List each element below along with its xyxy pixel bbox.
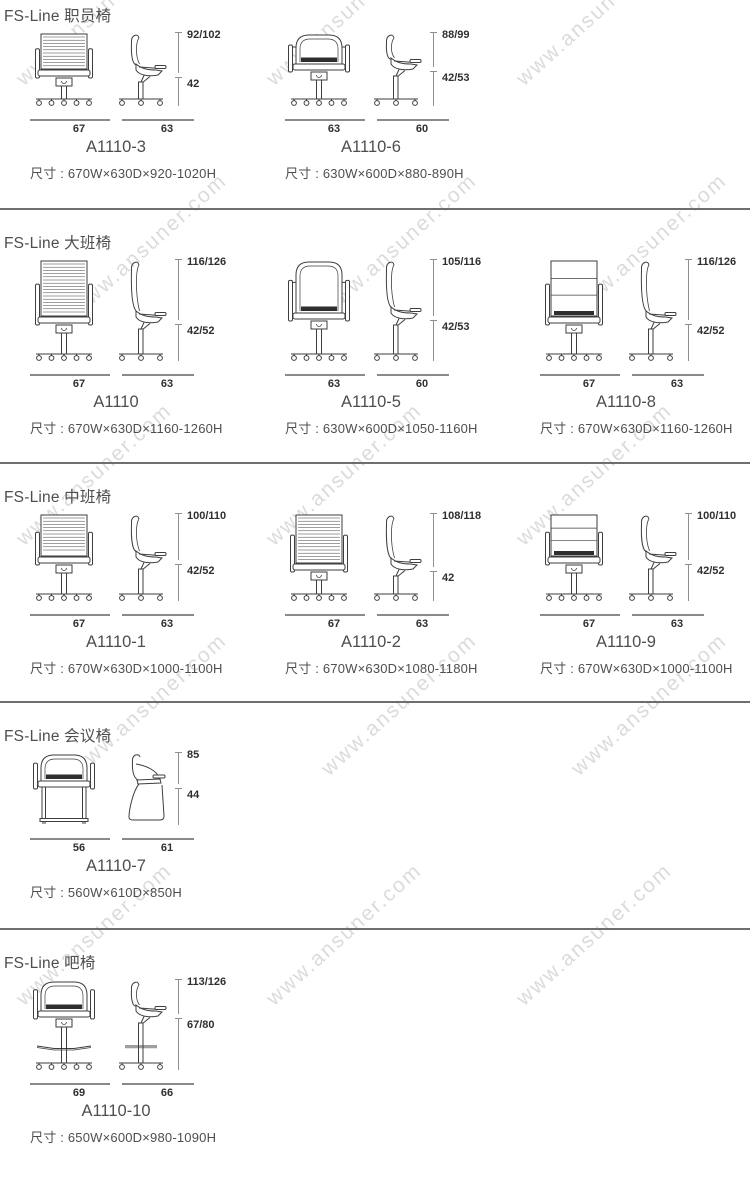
height-dimension-line [178, 324, 179, 361]
model-name: A1110 [30, 393, 202, 412]
width-dimension: 63 [285, 374, 365, 390]
models-row: 85445661A1110-7尺寸 : 560W×610D×850H [4, 752, 750, 901]
height-dimension-line [178, 513, 179, 560]
dimension-tick [685, 564, 692, 565]
model-name: A1110-2 [285, 633, 457, 652]
height-dimension-label: 92/102 [187, 30, 221, 41]
chair-front-view [285, 32, 353, 106]
width-dimensions: 6966 [30, 1083, 259, 1099]
chair-front-view [540, 259, 608, 361]
width-dimension: 60 [377, 374, 449, 390]
width-dimension-label: 67 [39, 376, 119, 390]
model-name: A1110-3 [30, 138, 202, 157]
models-row: 92/102426763A1110-3尺寸 : 670W×630D×920-10… [4, 32, 750, 182]
dimension-tick [175, 1018, 182, 1019]
height-dimension-line [433, 513, 434, 567]
model-size-label: 尺寸 : 670W×630D×1000-1100H [540, 658, 750, 677]
product-section: FS-Line 吧椅113/12667/806966A1110-10尺寸 : 6… [0, 930, 750, 1188]
product-section: FS-Line 职员椅92/102426763A1110-3尺寸 : 670W×… [0, 0, 750, 210]
width-dimension: 63 [122, 374, 194, 390]
height-dimension-label: 44 [187, 790, 199, 801]
height-dimension-label: 42/52 [697, 326, 725, 337]
catalog-page: www.ansuner.comwww.ansuner.comwww.ansune… [0, 0, 750, 1188]
dimension-tick [175, 77, 182, 78]
height-dimension-line [433, 320, 434, 361]
width-dimension-label: 61 [131, 840, 203, 854]
height-dimension: 100/11042/52 [688, 513, 744, 601]
width-dimension-label: 66 [131, 1085, 203, 1099]
width-dimension-label: 67 [294, 616, 374, 630]
model-name: A1110-5 [285, 393, 457, 412]
model-size-label: 尺寸 : 670W×630D×920-1020H [30, 163, 259, 182]
width-dimension: 67 [540, 374, 620, 390]
height-dimension: 8544 [178, 752, 234, 825]
dimension-tick [685, 324, 692, 325]
model-block: 100/11042/526763A1110-1尺寸 : 670W×630D×10… [4, 513, 259, 677]
model-block: 85445661A1110-7尺寸 : 560W×610D×850H [4, 752, 259, 901]
chair-side-view [112, 513, 170, 601]
chair-front-view [285, 513, 353, 601]
width-dimensions: 6763 [285, 614, 514, 630]
width-dimensions: 6763 [540, 374, 750, 390]
model-size-label: 尺寸 : 670W×630D×1160-1260H [540, 418, 750, 437]
dimension-tick [175, 259, 182, 260]
dimension-tick [430, 259, 437, 260]
drawing-row: 92/10242 [30, 32, 259, 106]
height-dimension-label: 42/52 [697, 566, 725, 577]
model-block: 113/12667/806966A1110-10尺寸 : 650W×600D×9… [4, 979, 259, 1146]
model-name: A1110-9 [540, 633, 712, 652]
width-dimension: 60 [377, 119, 449, 135]
product-section: FS-Line 中班椅100/11042/526763A1110-1尺寸 : 6… [0, 464, 750, 703]
width-dimension-label: 63 [131, 616, 203, 630]
drawing-row: 100/11042/52 [540, 513, 750, 601]
width-dimension: 63 [285, 119, 365, 135]
height-dimension-line [178, 564, 179, 601]
model-block: 116/12642/526763A1110-8尺寸 : 670W×630D×11… [514, 259, 750, 437]
width-dimension-label: 69 [39, 1085, 119, 1099]
dimension-tick [175, 788, 182, 789]
dimension-tick [175, 752, 182, 753]
height-dimension: 92/10242 [178, 32, 234, 106]
width-dimension: 63 [632, 614, 704, 630]
chair-side-view [367, 513, 425, 601]
chair-side-view [367, 259, 425, 361]
height-dimension-label: 100/110 [697, 511, 736, 522]
width-dimension-label: 67 [549, 616, 629, 630]
width-dimension-label: 63 [294, 376, 374, 390]
model-block: 100/11042/526763A1110-9尺寸 : 670W×630D×10… [514, 513, 750, 677]
chair-front-view [30, 513, 98, 601]
dimension-tick [685, 513, 692, 514]
model-size-label: 尺寸 : 630W×600D×880-890H [285, 163, 514, 182]
height-dimension-line [178, 979, 179, 1014]
section-title: FS-Line 大班椅 [4, 231, 750, 253]
drawing-row: 108/11842 [285, 513, 514, 601]
model-size-label: 尺寸 : 630W×600D×1050-1160H [285, 418, 514, 437]
product-section: FS-Line 会议椅85445661A1110-7尺寸 : 560W×610D… [0, 703, 750, 930]
dimension-tick [685, 259, 692, 260]
width-dimension-label: 63 [131, 121, 203, 135]
section-title: FS-Line 吧椅 [4, 951, 750, 973]
model-size-label: 尺寸 : 560W×610D×850H [30, 882, 259, 901]
width-dimensions: 6360 [285, 374, 514, 390]
model-size-label: 尺寸 : 670W×630D×1000-1100H [30, 658, 259, 677]
section-title: FS-Line 职员椅 [4, 4, 750, 26]
width-dimension-label: 63 [294, 121, 374, 135]
model-size-label: 尺寸 : 670W×630D×1080-1180H [285, 658, 514, 677]
models-row: 116/12642/526763A1110尺寸 : 670W×630D×1160… [4, 259, 750, 437]
dimension-tick [175, 32, 182, 33]
width-dimensions: 6763 [30, 374, 259, 390]
width-dimension: 69 [30, 1083, 110, 1099]
height-dimension-line [688, 324, 689, 361]
chair-front-view [30, 979, 98, 1070]
height-dimension-line [178, 788, 179, 825]
dimension-tick [175, 564, 182, 565]
height-dimension-line [178, 77, 179, 106]
height-dimension: 116/12642/52 [688, 259, 744, 361]
height-dimension-label: 42 [187, 79, 199, 90]
width-dimensions: 6763 [30, 614, 259, 630]
height-dimension-line [688, 564, 689, 601]
width-dimension-label: 67 [39, 616, 119, 630]
model-block: 92/102426763A1110-3尺寸 : 670W×630D×920-10… [4, 32, 259, 182]
width-dimension: 63 [122, 119, 194, 135]
width-dimension-label: 67 [549, 376, 629, 390]
width-dimension-label: 67 [39, 121, 119, 135]
model-block: 108/118426763A1110-2尺寸 : 670W×630D×1080-… [259, 513, 514, 677]
dimension-tick [175, 513, 182, 514]
width-dimension: 56 [30, 838, 110, 854]
height-dimension-line [433, 259, 434, 316]
width-dimension: 63 [377, 614, 449, 630]
width-dimensions: 6763 [540, 614, 750, 630]
width-dimension: 67 [30, 119, 110, 135]
width-dimension: 61 [122, 838, 194, 854]
chair-side-view [112, 752, 170, 825]
model-size-label: 尺寸 : 650W×600D×980-1090H [30, 1127, 259, 1146]
chair-front-view [30, 259, 98, 361]
height-dimension-label: 42/52 [187, 326, 215, 337]
chair-side-view [367, 32, 425, 106]
height-dimension-label: 42/52 [187, 566, 215, 577]
chair-side-view [112, 259, 170, 361]
dimension-tick [430, 320, 437, 321]
model-name: A1110-1 [30, 633, 202, 652]
dimension-tick [175, 979, 182, 980]
height-dimension-label: 116/126 [697, 257, 736, 268]
drawing-row: 100/11042/52 [30, 513, 259, 601]
width-dimension: 63 [632, 374, 704, 390]
width-dimension-label: 56 [39, 840, 119, 854]
drawing-row: 116/12642/52 [540, 259, 750, 361]
model-block: 88/9942/536360A1110-6尺寸 : 630W×600D×880-… [259, 32, 514, 182]
height-dimension: 116/12642/52 [178, 259, 234, 361]
drawing-row: 113/12667/80 [30, 979, 259, 1070]
height-dimension-label: 42/53 [442, 73, 470, 84]
height-dimension-line [178, 1018, 179, 1070]
width-dimension: 66 [122, 1083, 194, 1099]
width-dimension: 63 [122, 614, 194, 630]
width-dimension-label: 60 [386, 121, 458, 135]
height-dimension-line [433, 71, 434, 106]
height-dimension-line [688, 259, 689, 320]
width-dimension-label: 63 [131, 376, 203, 390]
height-dimension-label: 105/116 [442, 257, 481, 268]
drawing-row: 116/12642/52 [30, 259, 259, 361]
width-dimension-label: 63 [386, 616, 458, 630]
dimension-tick [430, 71, 437, 72]
width-dimension-label: 63 [641, 376, 713, 390]
drawing-row: 88/9942/53 [285, 32, 514, 106]
dimension-tick [175, 324, 182, 325]
height-dimension-line [178, 32, 179, 73]
height-dimension-label: 108/118 [442, 511, 481, 522]
height-dimension-label: 67/80 [187, 1020, 215, 1031]
height-dimension: 113/12667/80 [178, 979, 234, 1070]
sections-list: FS-Line 职员椅92/102426763A1110-3尺寸 : 670W×… [0, 0, 750, 1188]
drawing-row: 8544 [30, 752, 259, 825]
model-size-label: 尺寸 : 670W×630D×1160-1260H [30, 418, 259, 437]
height-dimension: 100/11042/52 [178, 513, 234, 601]
width-dimension: 67 [30, 374, 110, 390]
chair-front-view [540, 513, 608, 601]
model-block: 105/11642/536360A1110-5尺寸 : 630W×600D×10… [259, 259, 514, 437]
model-name: A1110-10 [30, 1102, 202, 1121]
height-dimension-label: 85 [187, 750, 199, 761]
height-dimension: 108/11842 [433, 513, 489, 601]
width-dimension: 67 [285, 614, 365, 630]
dimension-tick [430, 571, 437, 572]
model-name: A1110-7 [30, 857, 202, 876]
width-dimension: 67 [30, 614, 110, 630]
product-section: FS-Line 大班椅116/12642/526763A1110尺寸 : 670… [0, 210, 750, 464]
chair-front-view [30, 32, 98, 106]
models-row: 113/12667/806966A1110-10尺寸 : 650W×600D×9… [4, 979, 750, 1146]
height-dimension-label: 116/126 [187, 257, 226, 268]
height-dimension-label: 88/99 [442, 30, 470, 41]
height-dimension-label: 42 [442, 573, 454, 584]
height-dimension-label: 113/126 [187, 977, 226, 988]
chair-front-view [285, 259, 353, 361]
height-dimension-line [178, 752, 179, 784]
models-row: 100/11042/526763A1110-1尺寸 : 670W×630D×10… [4, 513, 750, 677]
height-dimension-line [178, 259, 179, 320]
width-dimensions: 6763 [30, 119, 259, 135]
width-dimension-label: 60 [386, 376, 458, 390]
chair-side-view [622, 513, 680, 601]
model-block: 116/12642/526763A1110尺寸 : 670W×630D×1160… [4, 259, 259, 437]
height-dimension-line [688, 513, 689, 560]
chair-side-view [112, 979, 170, 1070]
dimension-tick [430, 32, 437, 33]
width-dimension-label: 63 [641, 616, 713, 630]
height-dimension-line [433, 571, 434, 601]
drawing-row: 105/11642/53 [285, 259, 514, 361]
chair-side-view [622, 259, 680, 361]
height-dimension: 105/11642/53 [433, 259, 489, 361]
width-dimensions: 6360 [285, 119, 514, 135]
width-dimension: 67 [540, 614, 620, 630]
model-name: A1110-8 [540, 393, 712, 412]
section-title: FS-Line 会议椅 [4, 724, 750, 746]
section-title: FS-Line 中班椅 [4, 485, 750, 507]
height-dimension: 88/9942/53 [433, 32, 489, 106]
height-dimension-label: 100/110 [187, 511, 226, 522]
height-dimension-label: 42/53 [442, 322, 470, 333]
chair-front-view [30, 752, 98, 825]
chair-side-view [112, 32, 170, 106]
width-dimensions: 5661 [30, 838, 259, 854]
model-name: A1110-6 [285, 138, 457, 157]
height-dimension-line [433, 32, 434, 67]
dimension-tick [430, 513, 437, 514]
